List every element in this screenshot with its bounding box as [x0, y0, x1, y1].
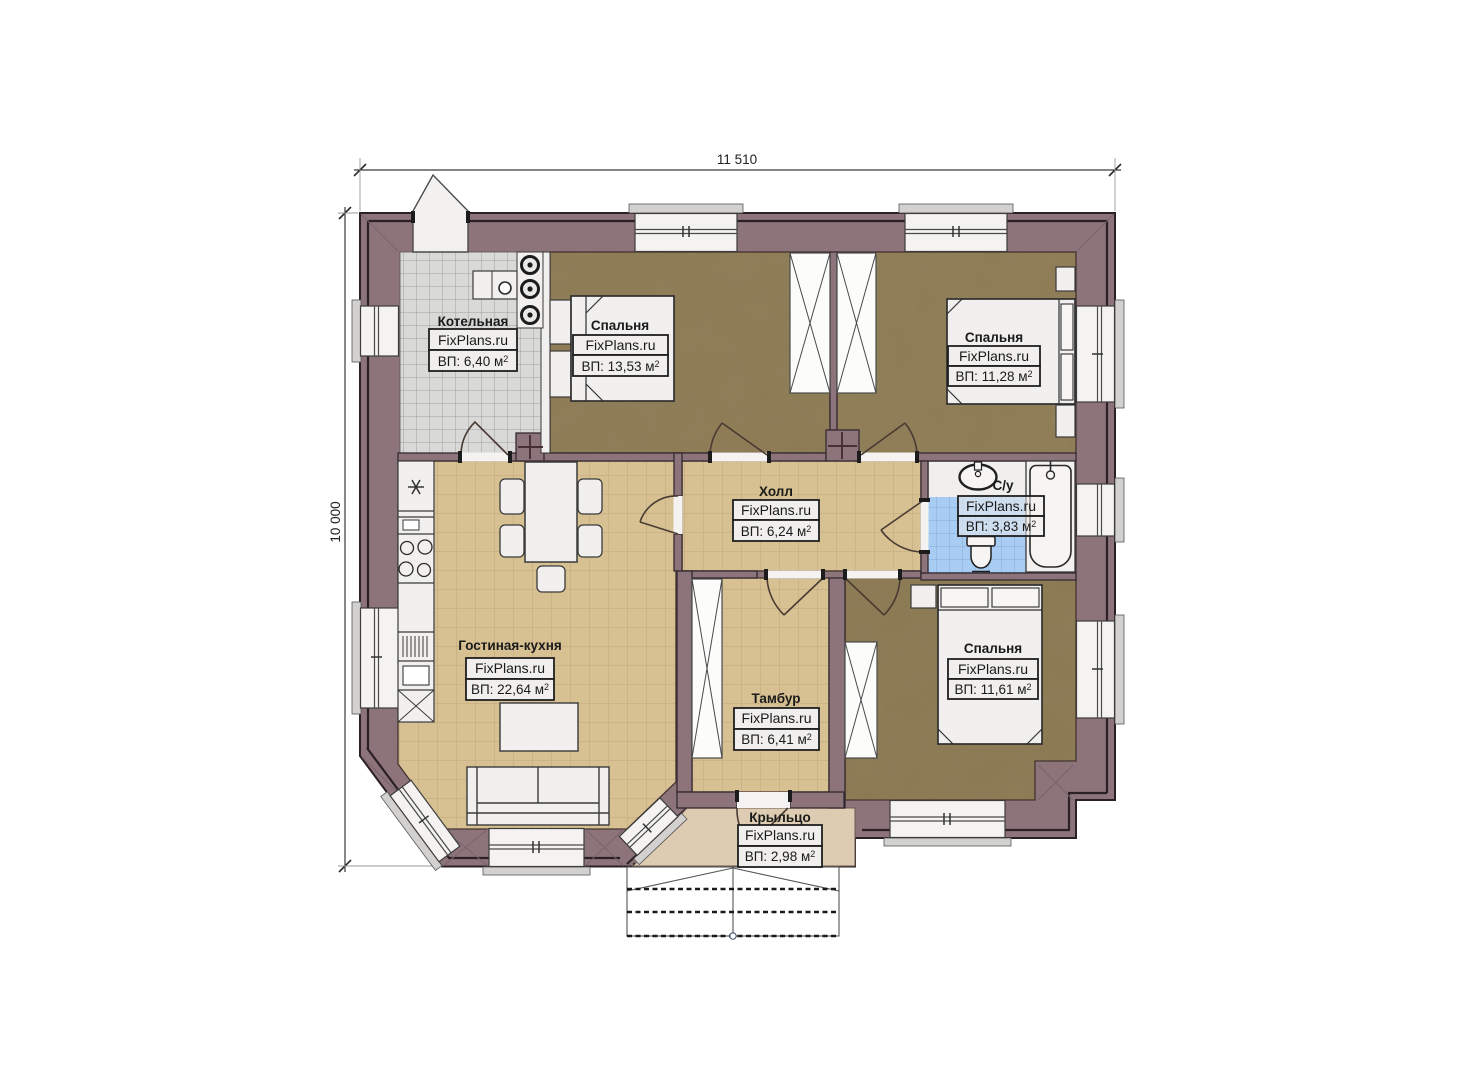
svg-text:ВП: 11,28 м2: ВП: 11,28 м2 [955, 369, 1032, 384]
svg-text:Спальня: Спальня [964, 641, 1022, 656]
svg-text:ВП: 6,41 м2: ВП: 6,41 м2 [741, 732, 812, 747]
svg-text:ВП: 2,98 м2: ВП: 2,98 м2 [745, 849, 816, 864]
svg-text:FixPlans.ru: FixPlans.ru [745, 827, 815, 843]
svg-text:ВП: 6,40 м2: ВП: 6,40 м2 [438, 354, 509, 369]
svg-text:10 000: 10 000 [328, 501, 343, 542]
svg-text:11 510: 11 510 [717, 152, 757, 167]
svg-text:Гостиная-кухня: Гостиная-кухня [458, 638, 561, 653]
svg-text:Спальня: Спальня [965, 330, 1023, 345]
svg-text:ВП: 13,53 м2: ВП: 13,53 м2 [581, 359, 659, 374]
svg-text:Тамбур: Тамбур [752, 691, 801, 706]
svg-text:FixPlans.ru: FixPlans.ru [959, 348, 1029, 364]
svg-text:ВП: 6,24 м2: ВП: 6,24 м2 [741, 524, 812, 539]
svg-text:Котельная: Котельная [438, 314, 509, 329]
svg-text:FixPlans.ru: FixPlans.ru [958, 661, 1028, 677]
svg-text:Крыльцо: Крыльцо [749, 810, 810, 825]
svg-text:FixPlans.ru: FixPlans.ru [741, 710, 811, 726]
svg-text:FixPlans.ru: FixPlans.ru [966, 498, 1036, 514]
svg-text:FixPlans.ru: FixPlans.ru [475, 660, 545, 676]
svg-text:ВП: 11,61 м2: ВП: 11,61 м2 [954, 682, 1031, 697]
svg-text:Холл: Холл [759, 484, 793, 499]
svg-text:ВП: 22,64 м2: ВП: 22,64 м2 [471, 682, 549, 697]
svg-text:Спальня: Спальня [591, 318, 649, 333]
svg-text:FixPlans.ru: FixPlans.ru [741, 502, 811, 518]
svg-text:ВП: 3,83 м2: ВП: 3,83 м2 [966, 519, 1037, 534]
svg-text:С/у: С/у [992, 478, 1014, 493]
svg-text:FixPlans.ru: FixPlans.ru [585, 337, 655, 353]
svg-text:FixPlans.ru: FixPlans.ru [438, 332, 508, 348]
